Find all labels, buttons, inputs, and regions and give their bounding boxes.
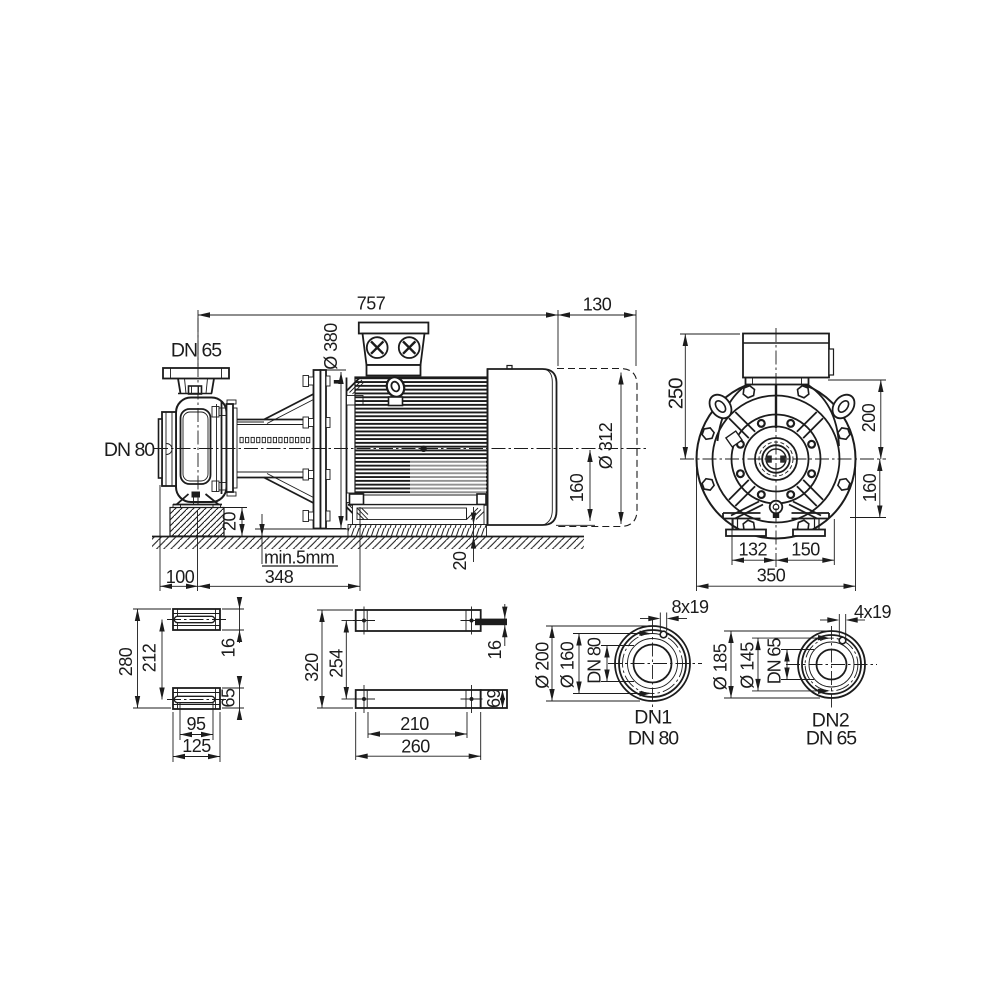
- svg-text:125: 125: [182, 736, 211, 756]
- svg-text:16: 16: [485, 640, 505, 660]
- svg-text:320: 320: [302, 653, 322, 682]
- svg-text:Ø 200: Ø 200: [533, 642, 553, 689]
- svg-text:280: 280: [116, 647, 136, 676]
- svg-text:210: 210: [400, 714, 429, 734]
- svg-text:Ø 185: Ø 185: [711, 643, 731, 690]
- svg-text:DN 80: DN 80: [104, 439, 155, 461]
- svg-text:Ø 380: Ø 380: [321, 323, 341, 370]
- svg-text:69: 69: [484, 689, 504, 709]
- svg-text:20: 20: [220, 512, 240, 532]
- svg-text:160: 160: [860, 473, 880, 502]
- svg-text:350: 350: [757, 566, 786, 586]
- svg-text:20: 20: [450, 551, 470, 571]
- svg-text:254: 254: [326, 649, 346, 678]
- svg-text:Ø 145: Ø 145: [738, 642, 758, 689]
- svg-text:212: 212: [140, 643, 160, 672]
- svg-text:65: 65: [219, 688, 239, 708]
- svg-text:DN 65: DN 65: [765, 638, 785, 685]
- svg-text:DN1: DN1: [634, 707, 672, 729]
- svg-text:Ø 312: Ø 312: [596, 422, 616, 469]
- svg-text:250: 250: [665, 378, 688, 409]
- svg-text:130: 130: [583, 295, 612, 315]
- svg-text:8x19: 8x19: [671, 597, 709, 617]
- svg-text:DN 80: DN 80: [585, 637, 605, 684]
- svg-text:DN 80: DN 80: [628, 728, 679, 750]
- svg-text:150: 150: [791, 540, 820, 560]
- svg-text:260: 260: [401, 737, 430, 757]
- svg-text:757: 757: [357, 294, 386, 314]
- svg-text:200: 200: [859, 403, 879, 432]
- svg-text:4x19: 4x19: [854, 602, 892, 622]
- svg-text:Ø 160: Ø 160: [558, 641, 578, 688]
- svg-text:16: 16: [219, 638, 239, 658]
- svg-text:min.5mm: min.5mm: [264, 548, 335, 568]
- svg-text:100: 100: [166, 567, 195, 587]
- svg-text:95: 95: [186, 714, 206, 734]
- svg-text:132: 132: [739, 540, 768, 560]
- svg-text:DN 65: DN 65: [806, 728, 857, 750]
- svg-text:DN 65: DN 65: [171, 340, 222, 362]
- svg-text:348: 348: [265, 567, 294, 587]
- svg-text:160: 160: [567, 473, 587, 502]
